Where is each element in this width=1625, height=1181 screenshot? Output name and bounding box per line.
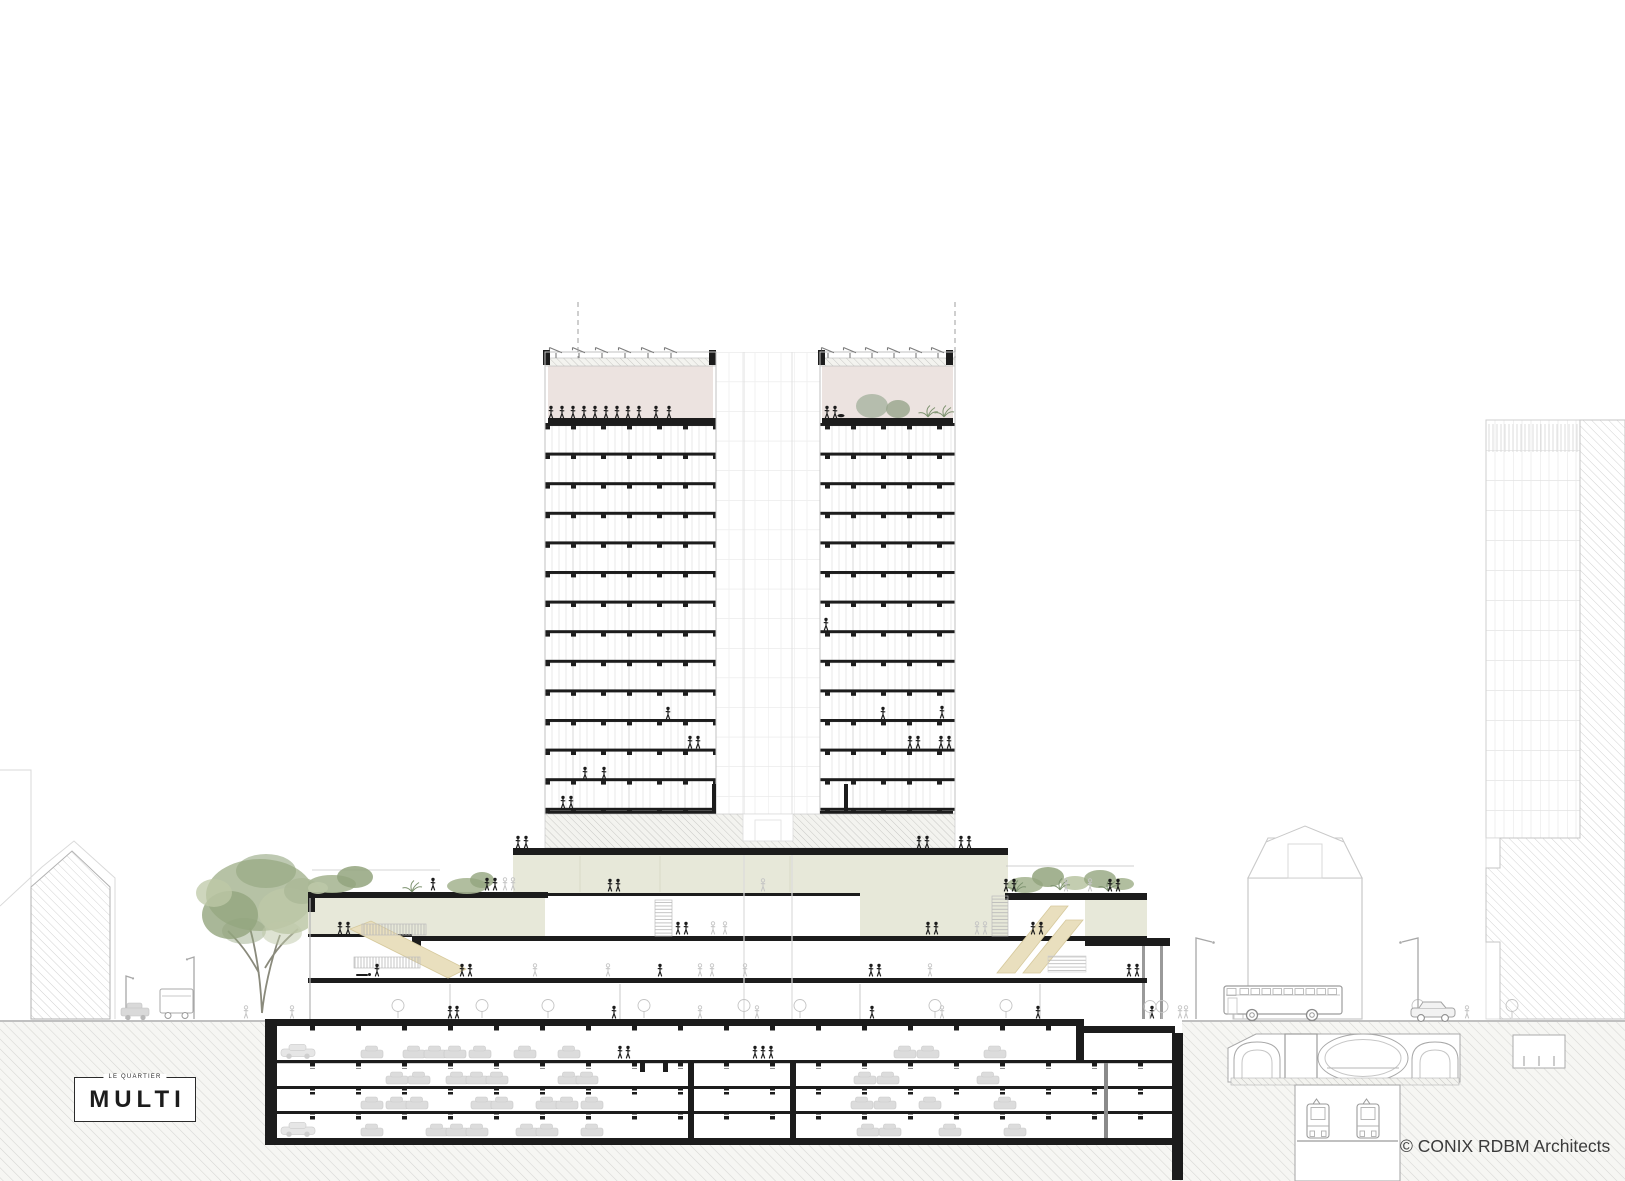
background-buildings-left — [0, 770, 115, 1019]
logo-name: MULTI — [89, 1086, 186, 1114]
parking-wall-left — [265, 1019, 277, 1145]
parking-wall-right — [1172, 1033, 1183, 1180]
metro-station-section — [1228, 1034, 1460, 1085]
architectural-section-drawing: LE QUARTIER MULTI © CONIX RDBM Architect… — [0, 0, 1625, 1181]
left-roof-terrace-plants — [308, 866, 494, 894]
left-roof-terrace-slab — [308, 892, 548, 898]
tunnel-arch-right — [1412, 1042, 1458, 1082]
datum-dashed-lines — [578, 302, 955, 358]
section-canvas — [0, 0, 1625, 1181]
metro-train — [1307, 1099, 1329, 1138]
parked-cars-b4 — [281, 1123, 1026, 1137]
podium-level2-band-right — [860, 855, 1008, 936]
copyright-credit: © CONIX RDBM Architects — [1400, 1136, 1625, 1157]
utility-duct — [1513, 1035, 1565, 1068]
metro-train — [1357, 1099, 1379, 1138]
parked-cars-b1 — [281, 1045, 1006, 1059]
earth-below-parking — [265, 1145, 1182, 1181]
tower-core — [716, 352, 820, 814]
tower — [543, 302, 955, 814]
car-left — [121, 1003, 149, 1020]
station-vault — [1318, 1034, 1408, 1082]
louver-bench — [354, 957, 420, 968]
podium-level1-band-left — [308, 898, 545, 936]
steps — [1048, 956, 1086, 972]
right-roof-garden-slab — [1005, 893, 1147, 900]
roof-slab-left — [545, 358, 716, 366]
roof-slab-right — [820, 358, 955, 366]
ground-slab — [265, 1019, 1083, 1026]
podium-level2-band — [513, 855, 860, 893]
tower-wing-right — [820, 423, 955, 814]
metro-deep-tunnel — [1295, 1085, 1400, 1181]
transfer-level — [513, 811, 1008, 855]
stair — [992, 896, 1008, 936]
street-lamp — [1196, 938, 1215, 1019]
logo-prefix: LE QUARTIER — [103, 1074, 166, 1080]
gabled-house-section — [31, 851, 110, 1019]
station-shaft — [1285, 1034, 1317, 1082]
louver-bench — [362, 924, 426, 935]
project-logo: LE QUARTIER MULTI — [74, 1077, 196, 1122]
right-roof-garden-plants — [1006, 866, 1134, 893]
people-basement — [618, 1046, 773, 1058]
street-tree — [196, 854, 320, 1013]
dog — [838, 414, 845, 417]
stair — [655, 900, 672, 936]
tower-wing-left — [545, 423, 716, 814]
podium — [308, 836, 1170, 1019]
background-tower-right — [1486, 420, 1625, 1019]
street-lamp — [1399, 938, 1418, 1019]
podium-ground-floor-slab — [308, 978, 1147, 983]
podium-level1-band-right — [1085, 900, 1147, 938]
bus-left — [160, 989, 193, 1019]
street-left — [121, 957, 194, 1020]
tunnel-arch-left — [1234, 1042, 1280, 1082]
parking-base-slab — [265, 1138, 1182, 1145]
